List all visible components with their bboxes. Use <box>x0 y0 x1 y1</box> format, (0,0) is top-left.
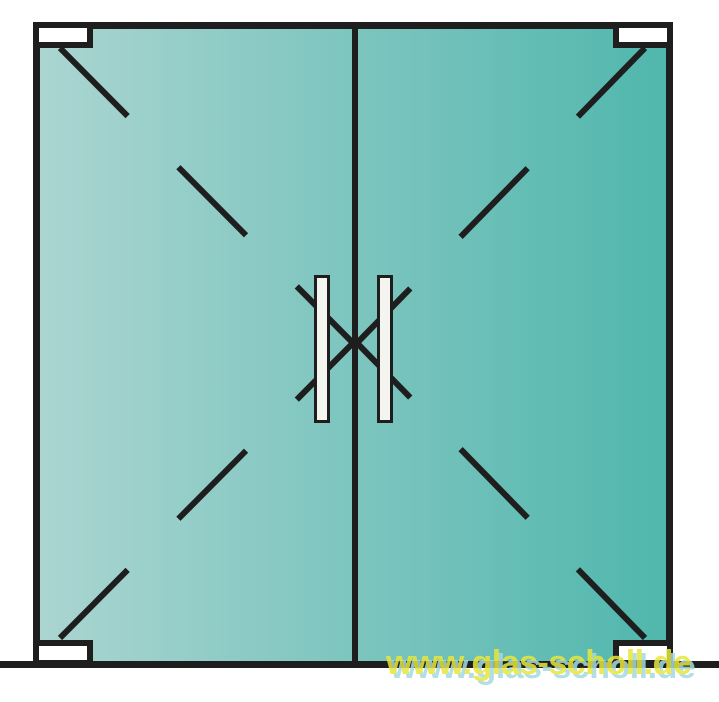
left-door-handle <box>314 275 330 423</box>
top-left-patch-fitting-icon <box>33 22 93 48</box>
watermark-text: www.glas-scholl.de <box>386 644 691 683</box>
right-door-panel <box>355 22 673 668</box>
top-right-patch-fitting-icon <box>613 22 673 48</box>
drawing-canvas: www.glas-scholl.de <box>0 0 719 702</box>
left-door-panel <box>33 22 355 668</box>
right-door-handle <box>377 275 393 423</box>
